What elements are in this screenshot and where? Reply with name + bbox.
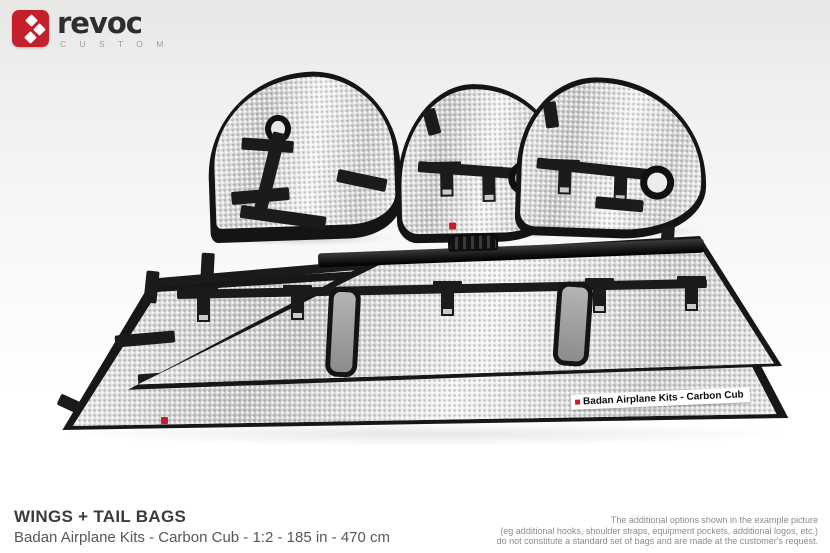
- strap-tab: [291, 288, 304, 320]
- revoc-mini-logo: [161, 417, 168, 424]
- product-photo: Badan Airplane Kits - Carbon Cub: [0, 0, 830, 553]
- window-panel: [325, 286, 362, 378]
- disclaimer: The additional options shown in the exam…: [497, 515, 818, 547]
- strap-tab: [197, 290, 210, 322]
- revoc-mini-logo: [575, 400, 580, 405]
- strap-tab: [440, 164, 454, 196]
- strap-tab: [593, 281, 606, 313]
- disclaimer-line: (eg additional hooks, shoulder straps, e…: [497, 526, 818, 537]
- strap-tab: [685, 279, 698, 311]
- disclaimer-line: The additional options shown in the exam…: [497, 515, 818, 526]
- stabilizer-bag-right: [514, 75, 709, 242]
- vertical-fin-bag: [205, 69, 403, 244]
- tube-bag-handle: [448, 233, 499, 252]
- page-subtitle: Badan Airplane Kits - Carbon Cub - 1:2 -…: [14, 529, 390, 546]
- strap-tab: [558, 162, 572, 194]
- revoc-mini-logo: [449, 222, 456, 229]
- strap-tab: [482, 170, 496, 202]
- strap-tab: [441, 284, 454, 316]
- caption-block: WINGS + TAIL BAGS Badan Airplane Kits - …: [14, 507, 390, 546]
- strap-tab: [57, 393, 84, 414]
- disclaimer-line: do not constitute a standard set of bags…: [497, 536, 818, 547]
- catalog-page: revoc C U S T O M: [0, 0, 830, 553]
- page-title: WINGS + TAIL BAGS: [14, 507, 390, 527]
- window-panel: [552, 281, 594, 367]
